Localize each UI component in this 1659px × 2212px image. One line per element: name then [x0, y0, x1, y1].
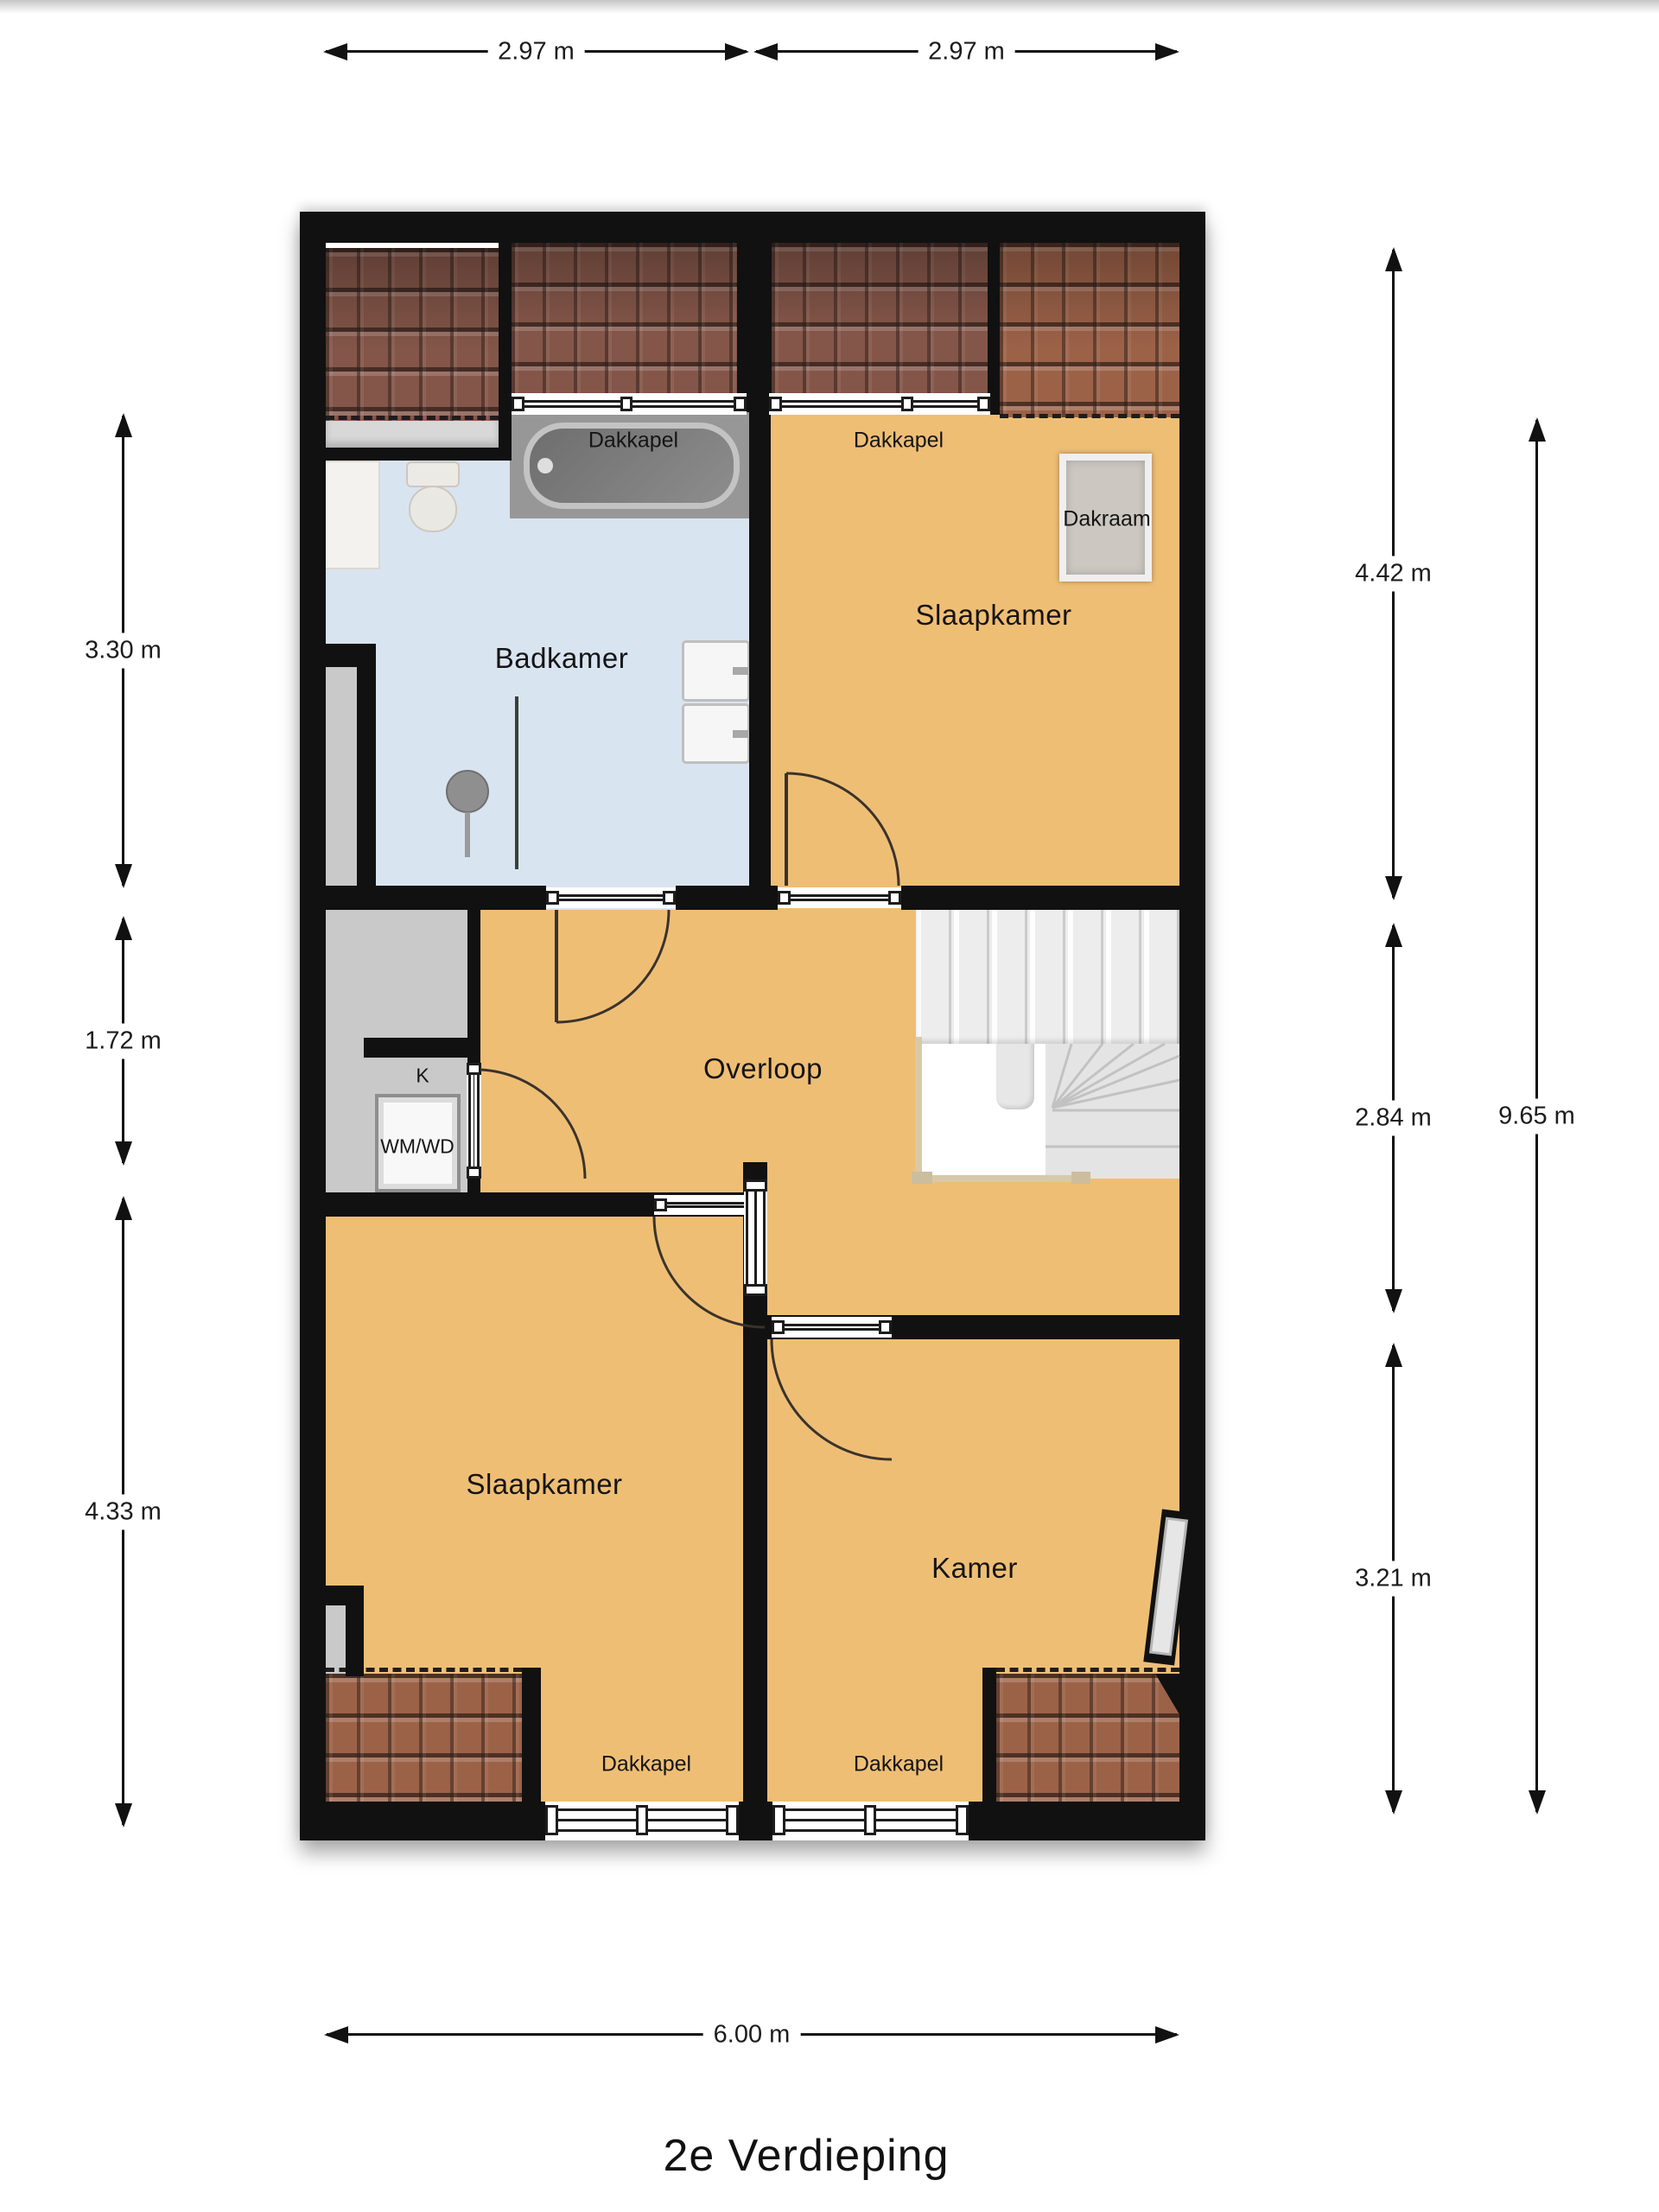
label-closet-k: K: [416, 1065, 429, 1088]
label-overloop: Overloop: [703, 1052, 823, 1085]
dim-right-1: 4.42 m: [1392, 250, 1395, 898]
wall-slant-wedge: [1155, 1674, 1185, 1725]
dim-right-total: 9.65 m: [1535, 420, 1538, 1812]
dim-top-right: 2.97 m: [756, 50, 1177, 53]
door-arc-slaapkamer-bottom: [654, 1217, 765, 1327]
page-title: 2e Verdieping: [663, 2130, 949, 2182]
label-dakraam: Dakraam: [1063, 507, 1150, 532]
shower-head: [447, 771, 488, 812]
dim-left-1-label: 3.30 m: [76, 633, 170, 669]
railing-post-end: [1071, 1172, 1090, 1184]
dim-right-2: 2.84 m: [1392, 925, 1395, 1311]
label-slaapkamer-top: Slaapkamer: [915, 599, 1071, 632]
dim-top-left-label: 2.97 m: [487, 34, 585, 69]
dim-left-1: 3.30 m: [122, 416, 124, 886]
dim-left-2-label: 1.72 m: [76, 1023, 170, 1058]
door-arc-badkamer: [556, 910, 669, 1022]
door-arc-slaapkamer-top: [786, 773, 899, 886]
label-slaapkamer-bottom: Slaapkamer: [466, 1468, 622, 1501]
label-washer: WM/WD: [380, 1135, 454, 1159]
door-arc-closet: [480, 1070, 585, 1179]
dim-left-2: 1.72 m: [122, 918, 124, 1163]
dim-top-left: 2.97 m: [326, 50, 747, 53]
label-kamer: Kamer: [931, 1552, 1018, 1585]
label-dakkapel-kamer: Dakkapel: [854, 1752, 944, 1777]
dim-top-right-label: 2.97 m: [918, 34, 1015, 69]
dim-bottom-label: 6.00 m: [703, 2017, 801, 2052]
dim-right-total-label: 9.65 m: [1490, 1098, 1584, 1134]
label-dakkapel-badkamer: Dakkapel: [588, 429, 678, 454]
dim-right-3: 3.21 m: [1392, 1345, 1395, 1812]
label-badkamer: Badkamer: [495, 642, 628, 675]
label-dakkapel-slaapkamer-bottom: Dakkapel: [601, 1752, 691, 1777]
stairs-winder-treads: [1046, 1044, 1179, 1147]
door-arc-kamer: [772, 1339, 892, 1459]
page-top-shadow: [0, 0, 1659, 14]
dim-left-3: 4.33 m: [122, 1198, 124, 1825]
railing-post-corner: [912, 1172, 932, 1184]
dim-right-2-label: 2.84 m: [1346, 1101, 1440, 1136]
dim-bottom: 6.00 m: [327, 2033, 1177, 2036]
dim-left-3-label: 4.33 m: [76, 1494, 170, 1529]
dim-right-1-label: 4.42 m: [1346, 556, 1440, 592]
floorplan-page: Badkamer Slaapkamer Overloop Slaapkamer …: [0, 0, 1659, 2212]
label-dakkapel-slaapkamer-top: Dakkapel: [854, 429, 944, 454]
dim-right-3-label: 3.21 m: [1346, 1561, 1440, 1597]
